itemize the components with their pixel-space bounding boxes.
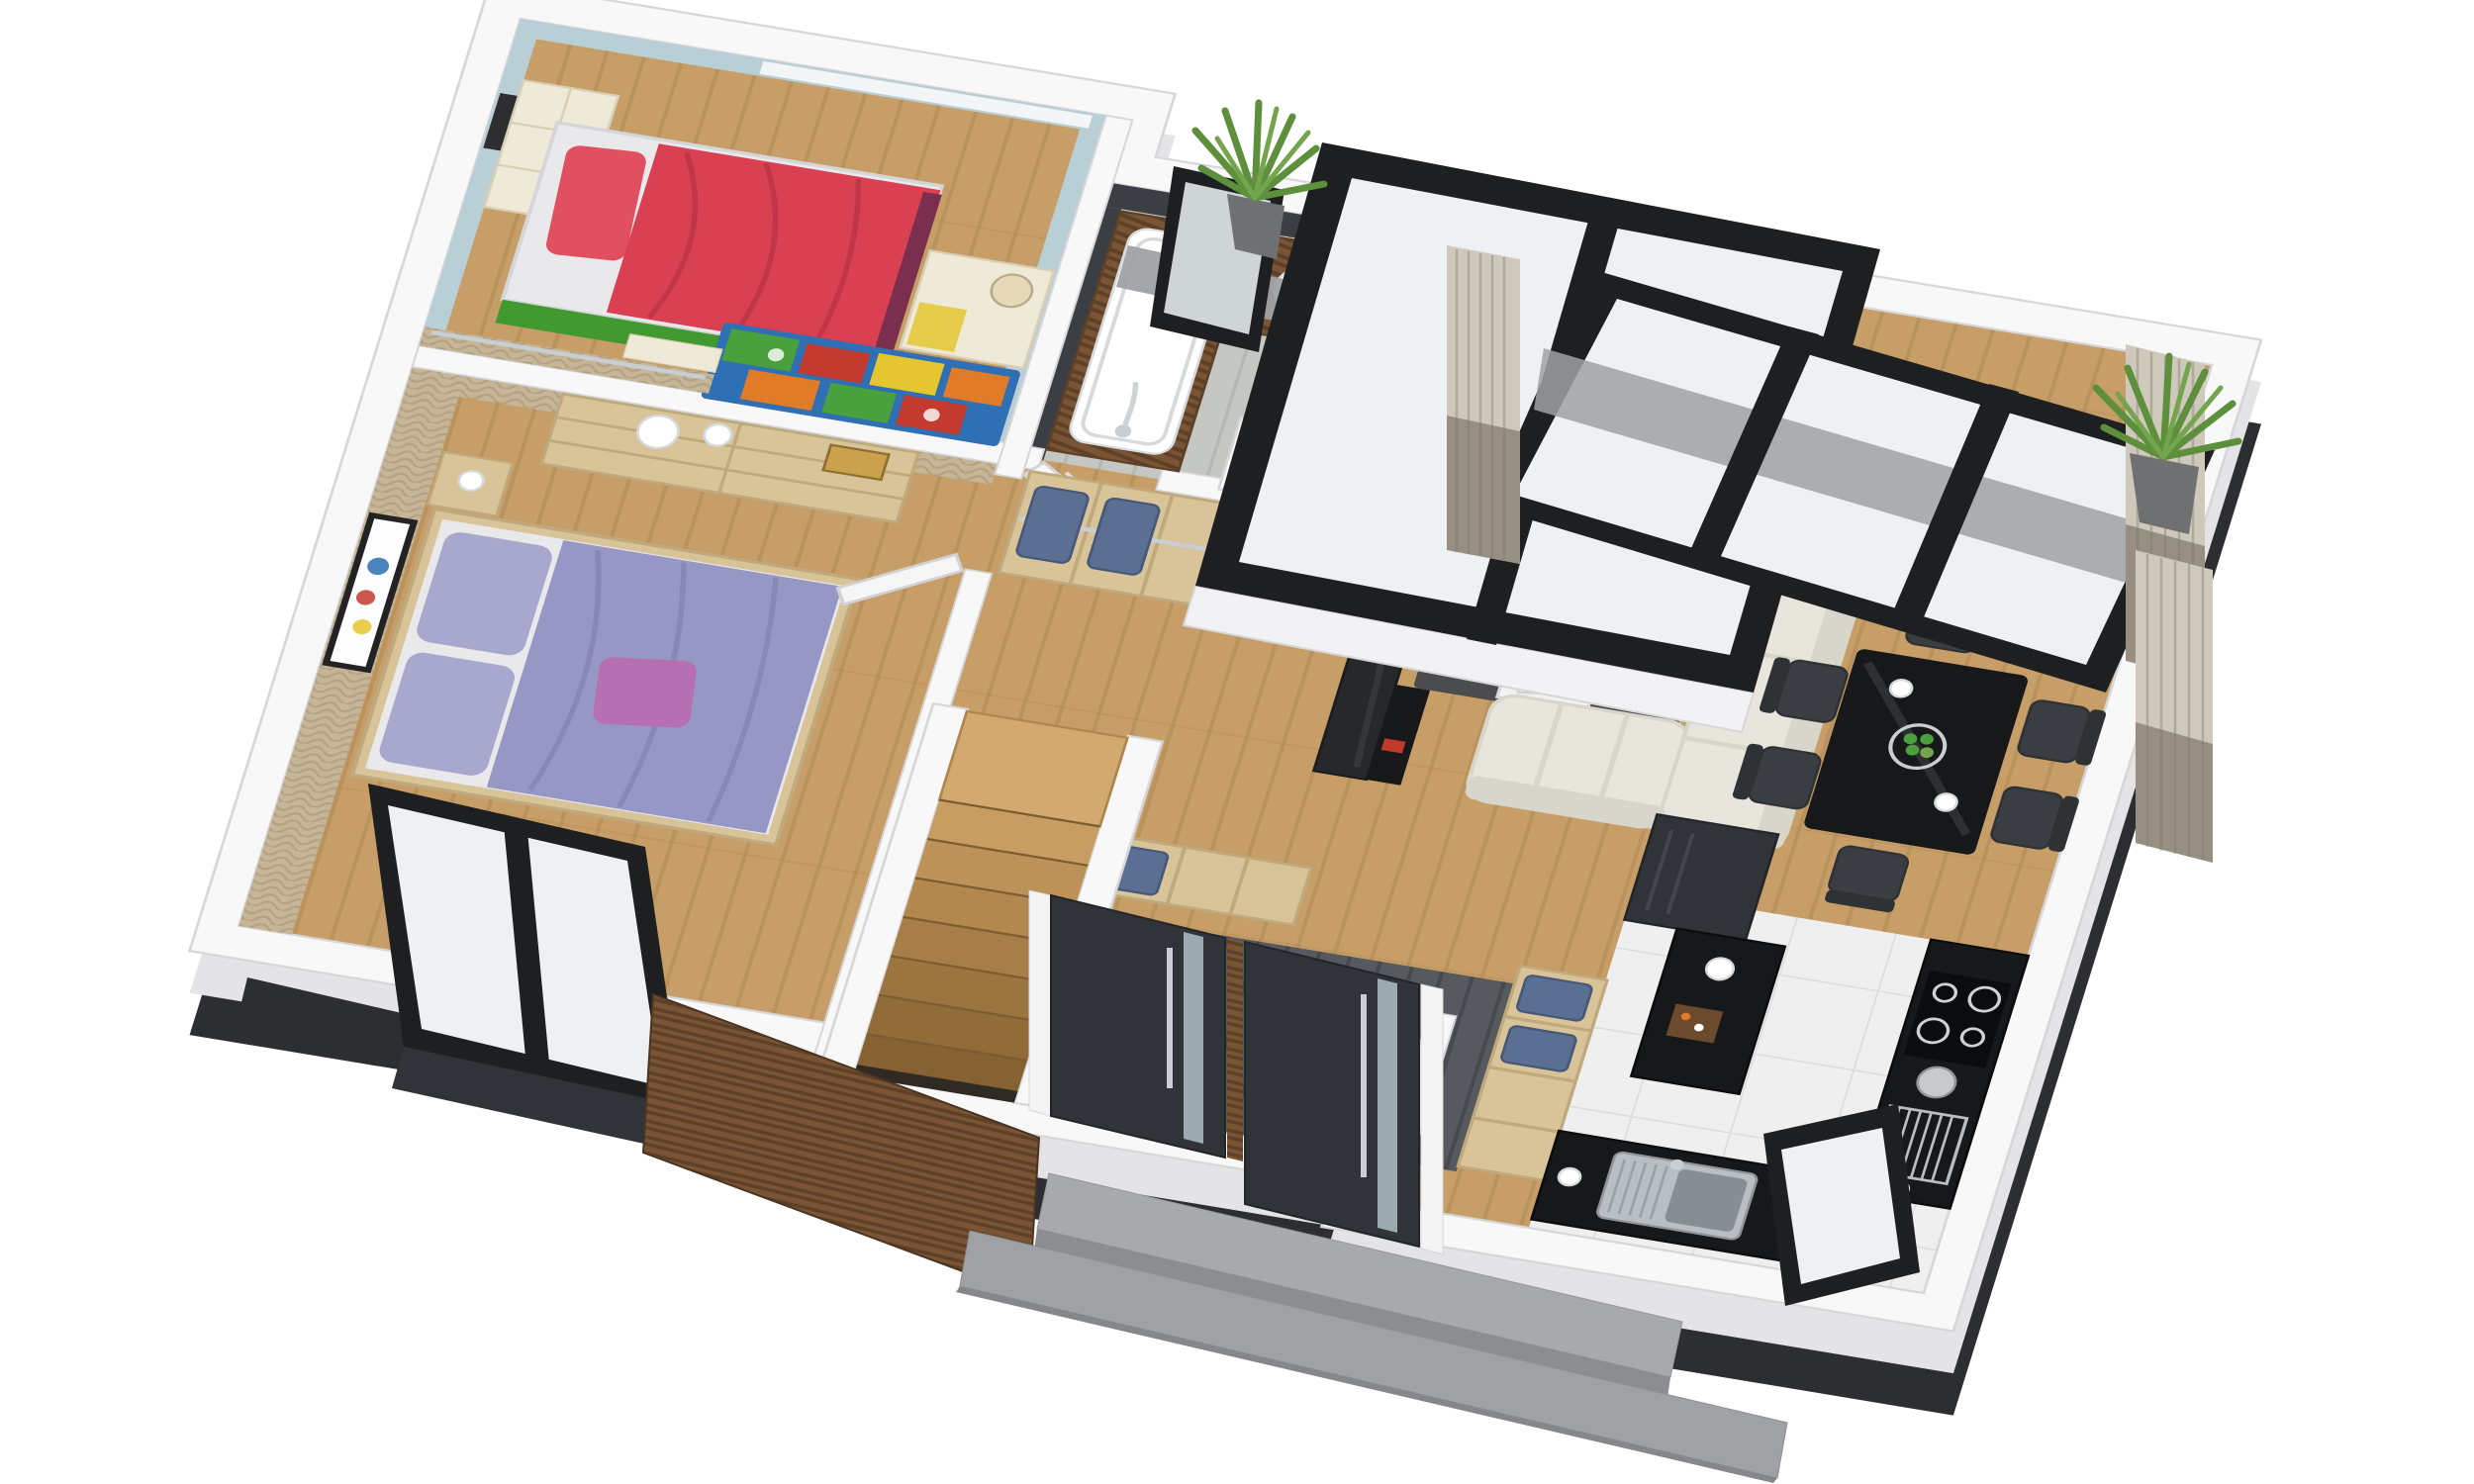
front-door-1 [1051, 895, 1225, 1158]
curtain-right-east [2136, 550, 2213, 863]
floor-plan-render [0, 0, 2474, 1484]
frosted-glass-strip [1184, 932, 1203, 1144]
curtain-left [1447, 245, 1520, 564]
kitchen-window [1763, 1104, 1920, 1306]
plant-pot [2130, 453, 2199, 534]
front-door-2 [1245, 942, 1419, 1247]
frosted-glass-strip [1378, 978, 1397, 1233]
floor-plan-canvas [0, 0, 2474, 1484]
door-jamb [1421, 984, 1443, 1254]
door-jamb [1029, 890, 1051, 1116]
pink-pillow [592, 657, 698, 728]
walnut-pillar [1227, 938, 1243, 1161]
